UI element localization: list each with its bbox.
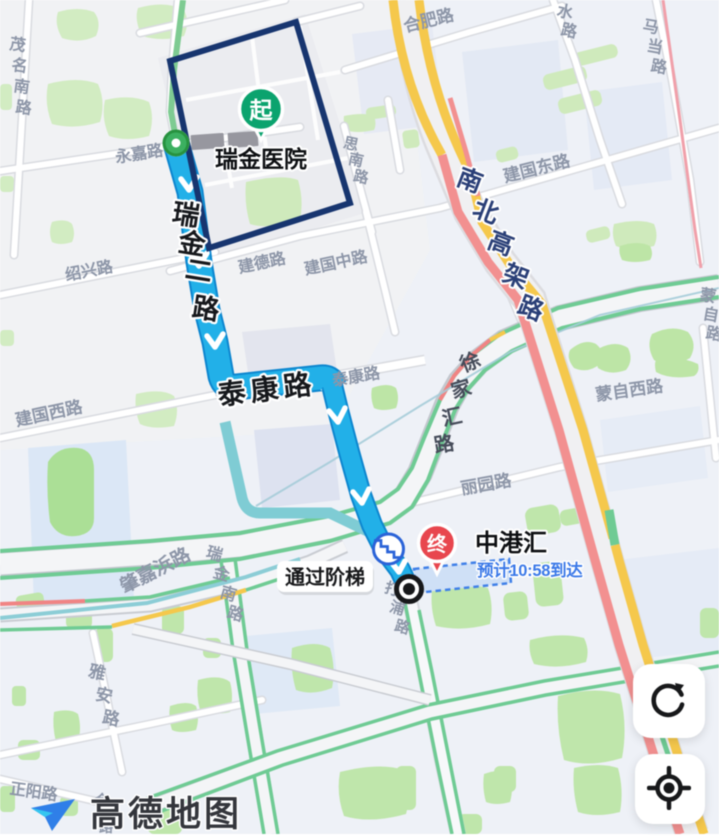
svg-text:起: 起 <box>250 97 274 123</box>
svg-text:自: 自 <box>701 304 719 325</box>
svg-text:茂: 茂 <box>9 34 28 55</box>
svg-text:二: 二 <box>183 254 214 288</box>
svg-text:瑞: 瑞 <box>170 198 201 232</box>
svg-text:马: 马 <box>641 17 660 38</box>
svg-text:预计10:58到达: 预计10:58到达 <box>477 560 583 580</box>
svg-text:名: 名 <box>11 55 30 76</box>
svg-text:中港汇: 中港汇 <box>475 530 547 557</box>
svg-text:终: 终 <box>427 532 448 556</box>
svg-text:通过阶梯: 通过阶梯 <box>285 565 365 589</box>
svg-text:瑞金医院: 瑞金医院 <box>215 146 307 172</box>
svg-text:路: 路 <box>704 323 719 345</box>
svg-text:高德地图: 高德地图 <box>90 795 242 834</box>
svg-text:南: 南 <box>13 76 32 97</box>
